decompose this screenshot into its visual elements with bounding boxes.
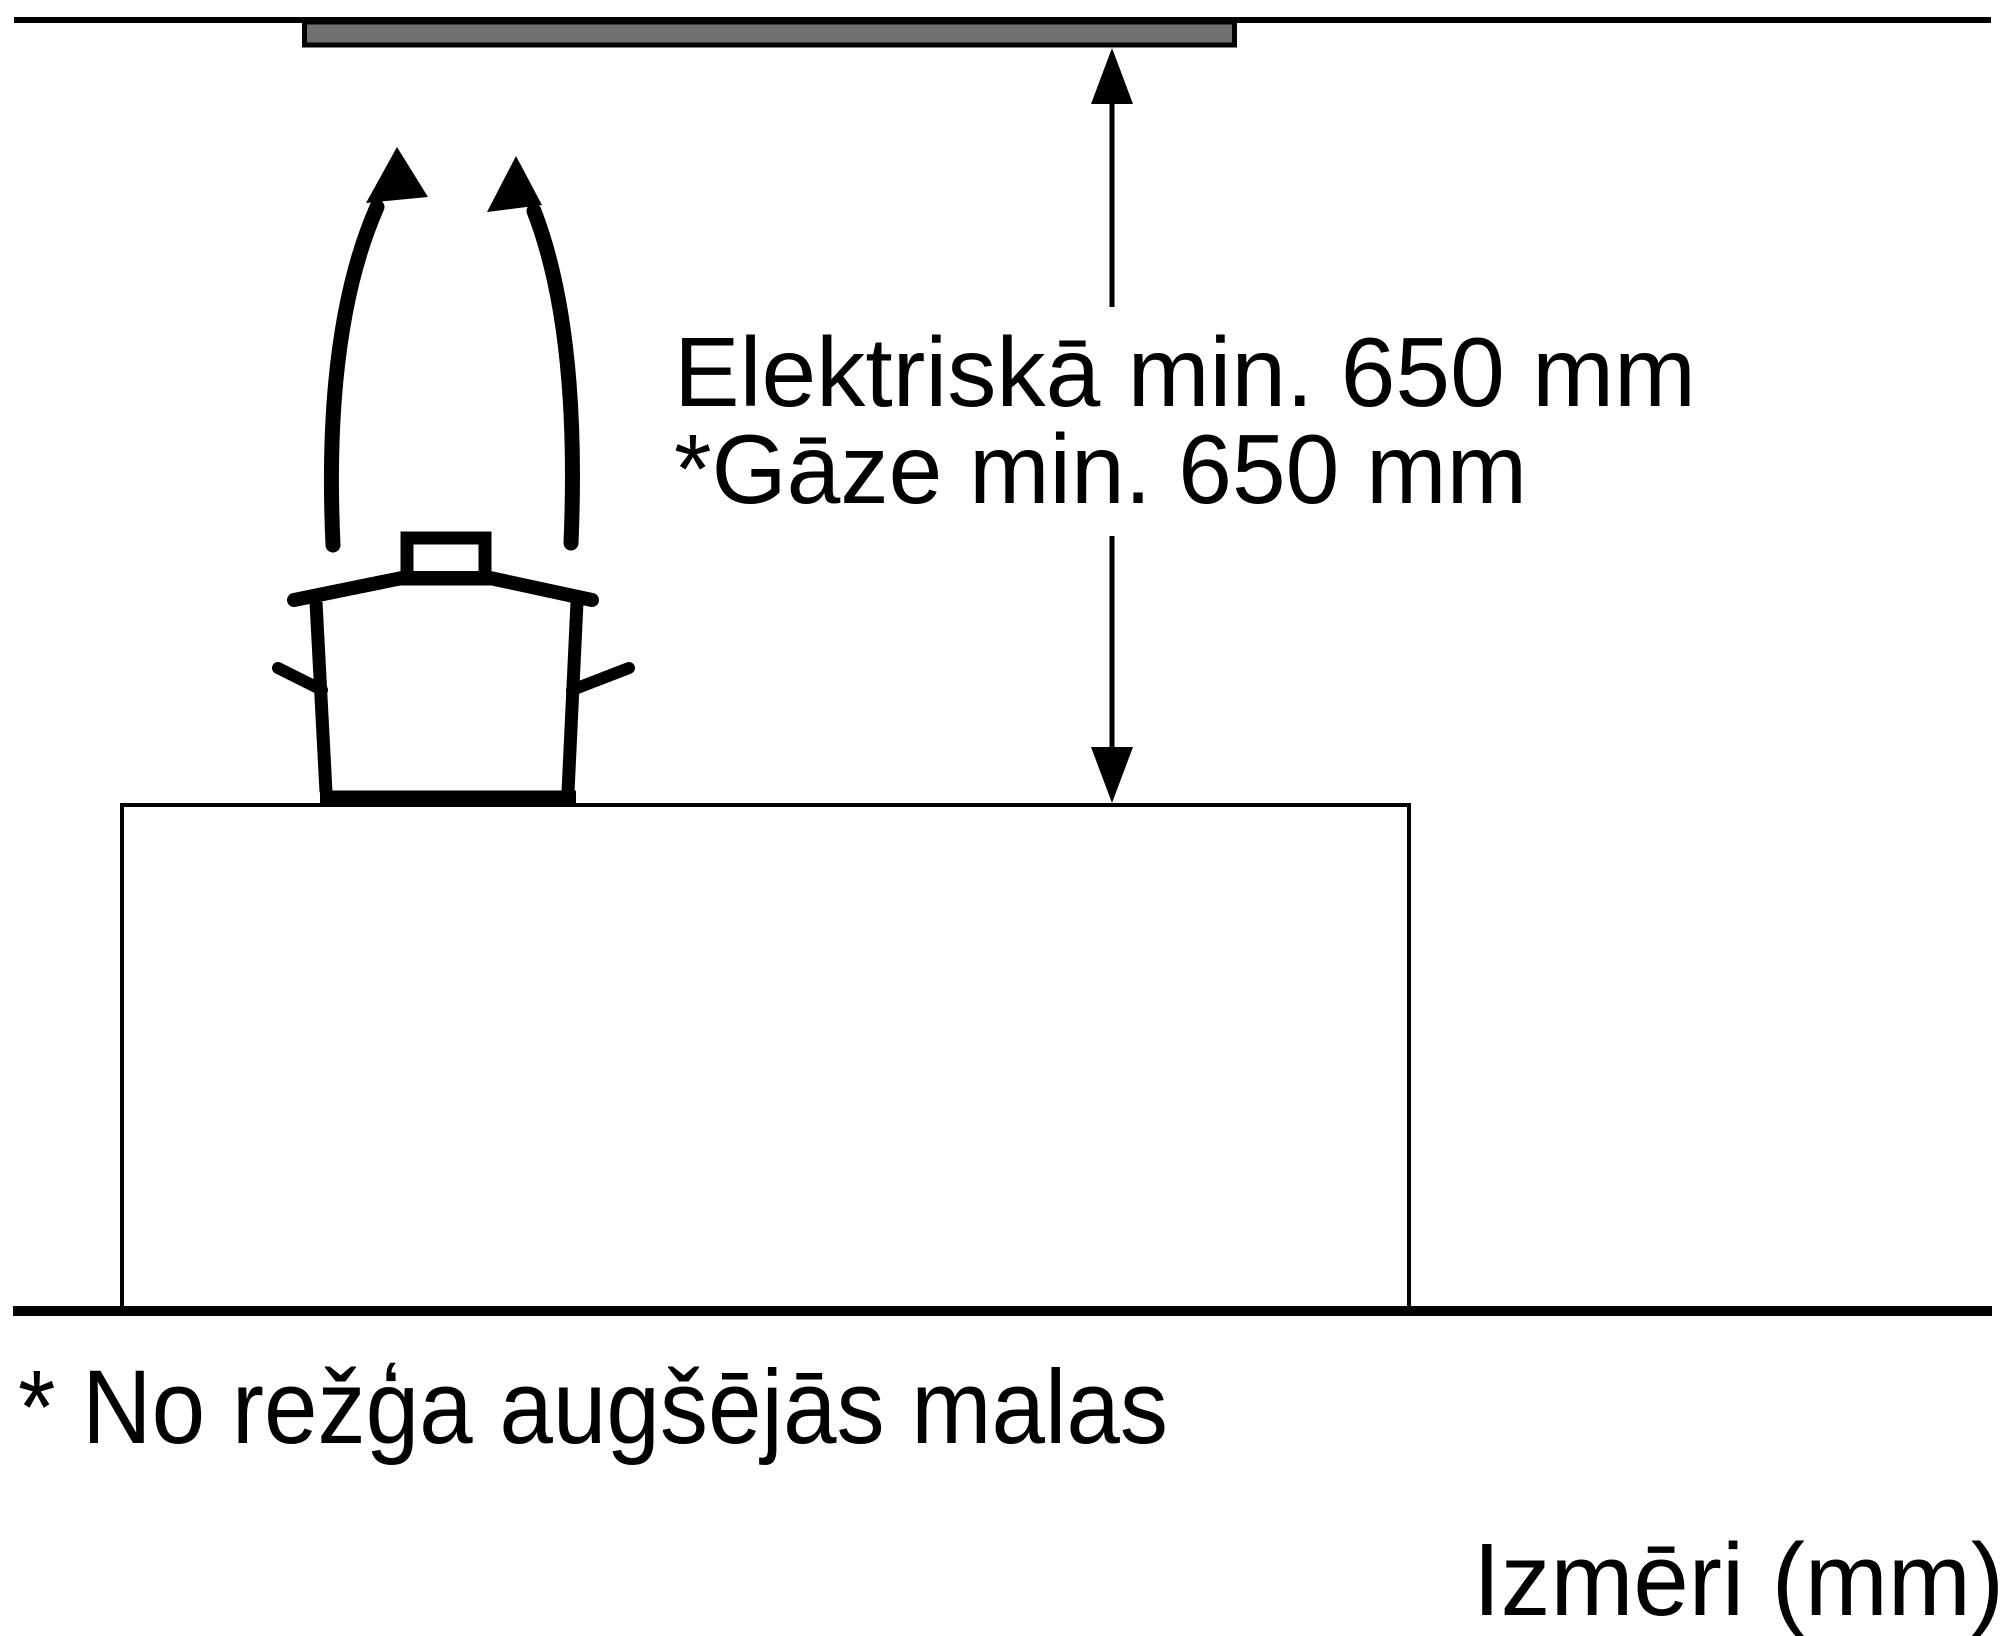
- svg-text:Izmēri (mm): Izmēri (mm): [1473, 1522, 2000, 1636]
- svg-text:*Gāze min. 650 mm: *Gāze min. 650 mm: [674, 414, 1527, 524]
- svg-text:* No režģa augšējās malas: * No režģa augšējās malas: [18, 1349, 1168, 1466]
- svg-text:Elektriskā min. 650 mm: Elektriskā min. 650 mm: [674, 317, 1696, 427]
